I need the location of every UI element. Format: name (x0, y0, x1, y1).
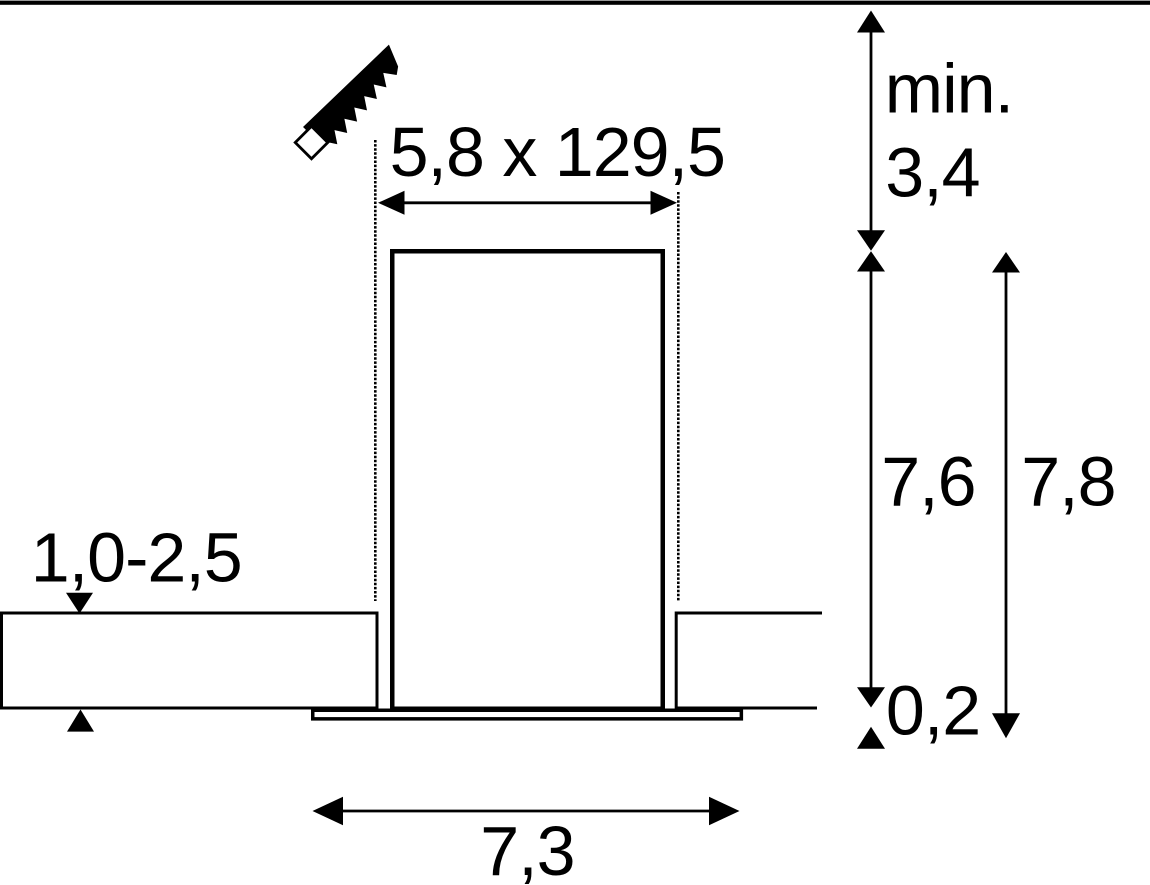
svg-text:0,2: 0,2 (886, 672, 980, 750)
svg-text:1,0-2,5: 1,0-2,5 (31, 519, 242, 597)
svg-text:3,4: 3,4 (885, 134, 979, 212)
svg-text:7,3: 7,3 (480, 812, 574, 885)
svg-text:7,6: 7,6 (881, 443, 975, 521)
svg-text:5,8 x 129,5: 5,8 x 129,5 (390, 113, 725, 191)
svg-text:min.: min. (885, 49, 1013, 127)
svg-text:7,8: 7,8 (1021, 442, 1115, 520)
